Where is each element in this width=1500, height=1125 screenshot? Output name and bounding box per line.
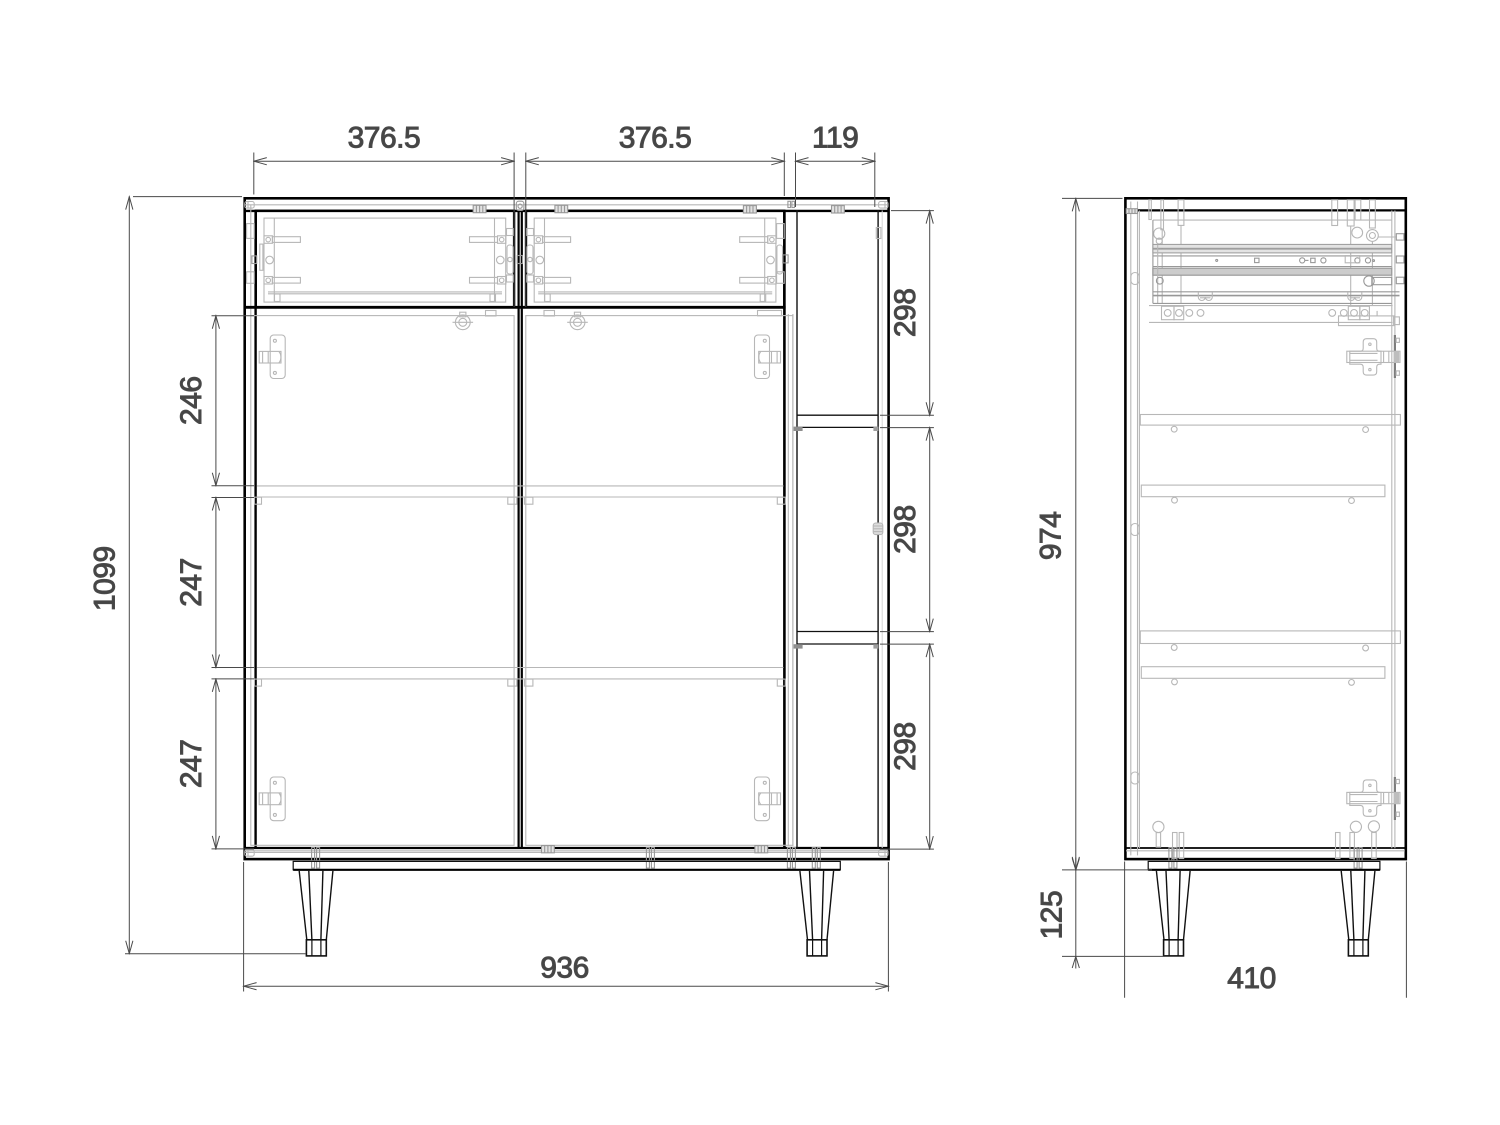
svg-text:410: 410 xyxy=(1227,962,1276,995)
svg-text:298: 298 xyxy=(889,722,922,771)
svg-text:119: 119 xyxy=(812,122,858,155)
svg-text:125: 125 xyxy=(1035,891,1068,940)
svg-text:1099: 1099 xyxy=(89,546,122,611)
svg-text:974: 974 xyxy=(1035,512,1068,561)
svg-text:246: 246 xyxy=(175,376,208,425)
svg-text:376.5: 376.5 xyxy=(619,122,692,155)
svg-text:247: 247 xyxy=(175,740,208,789)
svg-text:298: 298 xyxy=(889,505,922,554)
svg-text:376.5: 376.5 xyxy=(348,122,421,155)
svg-text:298: 298 xyxy=(889,289,922,338)
svg-text:247: 247 xyxy=(175,558,208,607)
svg-text:936: 936 xyxy=(540,952,589,985)
